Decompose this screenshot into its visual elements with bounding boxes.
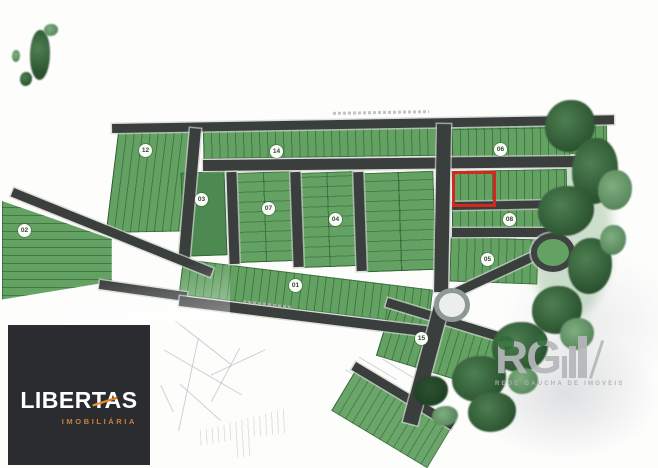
block-badge: 08 <box>503 213 516 226</box>
building-bars-icon <box>569 346 576 378</box>
libertas-tagline-text: IMOBILIÁRIA <box>8 417 150 426</box>
faded-plan-fragment <box>199 409 289 460</box>
sketch-line <box>180 384 222 422</box>
tree-cluster <box>414 376 448 406</box>
building-bars-icon <box>589 340 604 379</box>
block-badge: 12 <box>139 144 152 157</box>
block-badge: 15 <box>415 332 428 345</box>
street-name-label <box>333 110 429 115</box>
road-horizontal <box>452 228 554 237</box>
tree-icon <box>537 334 547 346</box>
block-badge: 05 <box>481 253 494 266</box>
road-vertical-main <box>434 124 451 292</box>
block-badge: 06 <box>494 143 507 156</box>
sketch-line <box>160 385 174 413</box>
road-connector <box>99 280 187 301</box>
block-middle <box>363 171 436 272</box>
block-badge: 03 <box>195 193 208 206</box>
block-badge: 01 <box>289 279 302 292</box>
sketch-line <box>211 348 240 401</box>
libertas-logo-box: LIBERTAS IMOBILIÁRIA <box>8 325 150 465</box>
tree-cluster <box>468 392 516 432</box>
block-badge: 04 <box>329 213 342 226</box>
tree-cluster <box>600 225 626 255</box>
rg-watermark: RG REDE GAUCHA DE IMOVEIS <box>495 336 645 396</box>
sketch-line <box>175 321 231 365</box>
building-bars-icon <box>562 356 567 378</box>
listing-photo-canvas: 12 14 02 03 07 04 06 08 05 01 15 LIBERTA… <box>0 0 658 465</box>
block-07 <box>236 171 293 263</box>
libertas-brand-text: LIBERTAS <box>8 387 150 414</box>
rg-tagline-text: REDE GAUCHA DE IMOVEIS <box>495 381 645 387</box>
building-bars-icon <box>578 336 587 378</box>
block-badge: 07 <box>262 202 275 215</box>
tree-cluster <box>20 72 32 86</box>
tree-cluster <box>30 30 50 80</box>
roundabout <box>434 288 470 322</box>
tree-cluster <box>44 24 58 36</box>
tree-cluster <box>12 50 20 62</box>
lot-highlight-box <box>452 171 496 207</box>
tree-icon <box>498 336 514 350</box>
sketch-line <box>164 350 242 396</box>
block-badge: 02 <box>18 224 31 237</box>
tree-cluster <box>598 170 632 210</box>
rg-logo-row: RG <box>495 336 645 378</box>
block-badge: 14 <box>270 145 283 158</box>
